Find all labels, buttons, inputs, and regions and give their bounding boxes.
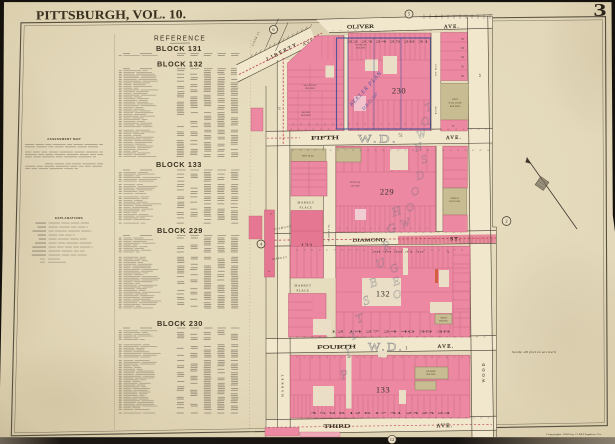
svg-text:19: 19 bbox=[373, 129, 375, 131]
svg-text:15: 15 bbox=[458, 417, 460, 419]
svg-text:42: 42 bbox=[394, 357, 396, 359]
svg-text:98: 98 bbox=[356, 124, 358, 126]
svg-text:13: 13 bbox=[379, 336, 381, 338]
svg-text:62: 62 bbox=[300, 124, 302, 126]
svg-text:10: 10 bbox=[350, 38, 352, 40]
svg-text:22: 22 bbox=[439, 357, 441, 359]
svg-text:86: 86 bbox=[416, 336, 418, 338]
svg-text:64: 64 bbox=[355, 232, 357, 234]
svg-text:40: 40 bbox=[365, 129, 367, 131]
svg-text:48: 48 bbox=[360, 417, 362, 419]
svg-text:11: 11 bbox=[358, 38, 360, 40]
svg-text:33: 33 bbox=[407, 30, 409, 32]
svg-text:64: 64 bbox=[424, 336, 426, 338]
svg-text:95: 95 bbox=[343, 129, 345, 131]
svg-text:35: 35 bbox=[463, 129, 465, 131]
svg-text:BLOCK 133: BLOCK 133 bbox=[156, 162, 202, 169]
svg-text:61: 61 bbox=[409, 357, 411, 359]
svg-text:11: 11 bbox=[488, 417, 490, 419]
svg-text:80: 80 bbox=[420, 150, 422, 152]
svg-text:FIFTH AVE: FIFTH AVE bbox=[350, 181, 361, 184]
svg-text:57: 57 bbox=[409, 336, 411, 338]
svg-text:58: 58 bbox=[435, 417, 437, 419]
svg-text:96: 96 bbox=[395, 129, 397, 131]
svg-text:28: 28 bbox=[431, 357, 433, 359]
svg-text:13: 13 bbox=[469, 357, 471, 359]
svg-text:14: 14 bbox=[385, 232, 387, 234]
svg-text:3: 3 bbox=[594, 0, 607, 20]
svg-text:71: 71 bbox=[371, 336, 373, 338]
svg-text:58: 58 bbox=[311, 357, 313, 359]
svg-text:67: 67 bbox=[315, 150, 317, 152]
svg-text:REFERENCE: REFERENCE bbox=[154, 34, 206, 43]
svg-text:46: 46 bbox=[345, 417, 347, 419]
svg-text:63: 63 bbox=[355, 30, 357, 32]
svg-text:MKT. BLDG: MKT. BLDG bbox=[302, 156, 314, 158]
svg-text:14: 14 bbox=[324, 124, 326, 126]
svg-text:70: 70 bbox=[392, 30, 394, 32]
svg-text:18: 18 bbox=[412, 150, 414, 152]
svg-text:91: 91 bbox=[362, 30, 364, 32]
svg-text:93: 93 bbox=[372, 124, 374, 126]
svg-text:18: 18 bbox=[349, 249, 351, 251]
svg-text:25: 25 bbox=[330, 417, 332, 419]
svg-text:45: 45 bbox=[484, 336, 486, 338]
svg-text:77: 77 bbox=[364, 336, 366, 338]
svg-text:53: 53 bbox=[305, 129, 307, 131]
svg-text:68: 68 bbox=[428, 124, 430, 126]
svg-text:59: 59 bbox=[330, 150, 332, 152]
svg-text:92: 92 bbox=[300, 417, 302, 419]
svg-text:AVE.: AVE. bbox=[436, 423, 453, 429]
svg-text:38: 38 bbox=[442, 150, 444, 152]
svg-text:NATL BANK: NATL BANK bbox=[449, 200, 461, 203]
svg-text:39: 39 bbox=[410, 38, 412, 40]
svg-text:60: 60 bbox=[383, 417, 385, 419]
svg-text:54: 54 bbox=[453, 232, 455, 234]
svg-text:27: 27 bbox=[296, 357, 298, 359]
svg-text:94: 94 bbox=[403, 129, 405, 131]
svg-text:AVE.: AVE. bbox=[437, 344, 454, 350]
svg-text:31: 31 bbox=[354, 228, 356, 230]
svg-text:74: 74 bbox=[322, 150, 324, 152]
svg-text:66: 66 bbox=[316, 124, 318, 126]
svg-text:OLIVER AVE: OLIVER AVE bbox=[355, 44, 367, 47]
svg-text:60: 60 bbox=[446, 357, 448, 359]
svg-text:71: 71 bbox=[377, 30, 379, 32]
svg-text:74: 74 bbox=[415, 30, 417, 32]
svg-text:W.D.: W.D. bbox=[358, 132, 398, 146]
svg-text:42: 42 bbox=[341, 336, 343, 338]
svg-text:28: 28 bbox=[395, 38, 397, 40]
svg-text:FOURTH: FOURTH bbox=[317, 344, 357, 351]
svg-text:12: 12 bbox=[420, 124, 422, 126]
svg-text:52: 52 bbox=[332, 124, 334, 126]
svg-text:84: 84 bbox=[373, 38, 375, 40]
svg-text:29: 29 bbox=[401, 336, 403, 338]
svg-text:BUILDING: BUILDING bbox=[305, 88, 315, 90]
svg-text:230: 230 bbox=[392, 86, 406, 96]
svg-text:43: 43 bbox=[341, 357, 343, 359]
svg-text:28: 28 bbox=[478, 129, 480, 131]
svg-text:47: 47 bbox=[416, 249, 418, 251]
svg-text:28: 28 bbox=[315, 417, 317, 419]
svg-text:59: 59 bbox=[352, 150, 354, 152]
svg-text:ARCADE: ARCADE bbox=[351, 184, 361, 187]
svg-text:21: 21 bbox=[375, 150, 377, 152]
svg-text:84: 84 bbox=[379, 357, 381, 359]
svg-text:30: 30 bbox=[334, 249, 336, 251]
svg-text:14: 14 bbox=[350, 129, 352, 131]
svg-text:18: 18 bbox=[388, 38, 390, 40]
svg-text:29: 29 bbox=[319, 336, 321, 338]
svg-text:40: 40 bbox=[430, 30, 432, 32]
svg-text:57: 57 bbox=[380, 124, 382, 126]
svg-text:COLUMBIA: COLUMBIA bbox=[426, 370, 437, 373]
svg-text:21: 21 bbox=[404, 124, 406, 126]
svg-text:79: 79 bbox=[340, 124, 342, 126]
svg-text:NATL. BANK: NATL. BANK bbox=[449, 101, 462, 104]
svg-text:53: 53 bbox=[470, 129, 472, 131]
svg-text:63: 63 bbox=[386, 357, 388, 359]
svg-text:88: 88 bbox=[308, 124, 310, 126]
svg-text:GERMAN: GERMAN bbox=[450, 197, 459, 200]
svg-text:77: 77 bbox=[422, 30, 424, 32]
svg-text:JOT WAY: JOT WAY bbox=[435, 64, 438, 77]
svg-text:24: 24 bbox=[487, 150, 489, 152]
svg-text:29: 29 bbox=[396, 124, 398, 126]
svg-text:41: 41 bbox=[326, 249, 328, 251]
svg-text:BUILDING: BUILDING bbox=[426, 374, 436, 376]
svg-text:98: 98 bbox=[347, 30, 349, 32]
svg-text:32: 32 bbox=[348, 232, 350, 234]
svg-text:EXPLANATIONS: EXPLANATIONS bbox=[55, 216, 83, 220]
svg-text:47: 47 bbox=[300, 150, 302, 152]
svg-text:53: 53 bbox=[296, 336, 298, 338]
svg-text:64: 64 bbox=[380, 38, 382, 40]
svg-text:89: 89 bbox=[480, 150, 482, 152]
svg-text:83: 83 bbox=[450, 150, 452, 152]
svg-text:44: 44 bbox=[360, 150, 362, 152]
svg-text:81: 81 bbox=[472, 150, 474, 152]
svg-text:25: 25 bbox=[425, 129, 427, 131]
svg-text:97: 97 bbox=[319, 357, 321, 359]
svg-text:BUILDING: BUILDING bbox=[356, 48, 366, 50]
svg-text:ASSESSMENT MAP: ASSESSMENT MAP bbox=[47, 137, 81, 141]
svg-text:ST: ST bbox=[479, 73, 482, 77]
svg-text:WOOD: WOOD bbox=[481, 361, 486, 382]
svg-text:ST: ST bbox=[279, 106, 282, 110]
svg-text:85: 85 bbox=[349, 357, 351, 359]
svg-text:71: 71 bbox=[371, 249, 373, 251]
svg-text:229: 229 bbox=[380, 187, 394, 197]
svg-text:90: 90 bbox=[362, 228, 364, 230]
svg-text:27: 27 bbox=[349, 336, 351, 338]
svg-text:70: 70 bbox=[440, 129, 442, 131]
svg-text:62: 62 bbox=[292, 150, 294, 152]
svg-text:49: 49 bbox=[454, 336, 456, 338]
svg-text:22: 22 bbox=[454, 357, 456, 359]
svg-text:54: 54 bbox=[386, 228, 388, 230]
svg-text:51: 51 bbox=[356, 357, 358, 359]
svg-text:PLACE: PLACE bbox=[299, 206, 312, 210]
svg-text:11: 11 bbox=[445, 232, 447, 234]
svg-text:38: 38 bbox=[398, 417, 400, 419]
svg-text:62: 62 bbox=[364, 249, 366, 251]
svg-text:67: 67 bbox=[308, 417, 310, 419]
svg-text:W.D.: W.D. bbox=[368, 340, 404, 354]
svg-text:33: 33 bbox=[461, 357, 463, 359]
svg-text:FIRST: FIRST bbox=[452, 99, 459, 101]
svg-text:59: 59 bbox=[455, 129, 457, 131]
svg-text:86: 86 bbox=[394, 228, 396, 230]
svg-text:73: 73 bbox=[390, 150, 392, 152]
svg-text:ARROTT: ARROTT bbox=[440, 317, 448, 320]
svg-text:87: 87 bbox=[457, 150, 459, 152]
svg-text:MARKET: MARKET bbox=[294, 284, 311, 288]
svg-text:92: 92 bbox=[304, 336, 306, 338]
svg-text:74: 74 bbox=[473, 417, 475, 419]
svg-text:81: 81 bbox=[433, 129, 435, 131]
svg-text:81: 81 bbox=[448, 129, 450, 131]
svg-text:54: 54 bbox=[370, 228, 372, 230]
svg-text:41: 41 bbox=[371, 357, 373, 359]
svg-text:Scale 40 feet to an inch: Scale 40 feet to an inch bbox=[512, 350, 556, 354]
svg-text:35: 35 bbox=[380, 129, 382, 131]
svg-text:26: 26 bbox=[326, 357, 328, 359]
svg-text:87: 87 bbox=[465, 417, 467, 419]
svg-text:60: 60 bbox=[454, 249, 456, 251]
svg-text:98: 98 bbox=[418, 38, 420, 40]
svg-text:PLACE: PLACE bbox=[296, 289, 309, 293]
svg-text:BUILDING: BUILDING bbox=[439, 320, 448, 322]
svg-text:MAGNET: MAGNET bbox=[302, 111, 311, 114]
svg-text:19: 19 bbox=[418, 129, 420, 131]
svg-text:72: 72 bbox=[460, 232, 462, 234]
svg-text:12: 12 bbox=[388, 124, 390, 126]
svg-text:56: 56 bbox=[307, 150, 309, 152]
svg-text:66: 66 bbox=[356, 249, 358, 251]
svg-text:23: 23 bbox=[418, 228, 420, 230]
svg-text:85: 85 bbox=[438, 232, 440, 234]
svg-text:14: 14 bbox=[424, 249, 426, 251]
svg-text:78: 78 bbox=[485, 129, 487, 131]
svg-text:89: 89 bbox=[405, 417, 407, 419]
svg-text:43: 43 bbox=[401, 249, 403, 251]
svg-text:62: 62 bbox=[423, 232, 425, 234]
svg-text:37: 37 bbox=[386, 336, 388, 338]
svg-text:39: 39 bbox=[403, 38, 405, 40]
svg-text:84: 84 bbox=[439, 336, 441, 338]
svg-text:13: 13 bbox=[334, 357, 336, 359]
svg-text:19: 19 bbox=[323, 417, 325, 419]
svg-text:94: 94 bbox=[408, 232, 410, 234]
svg-text:46: 46 bbox=[386, 249, 388, 251]
svg-text:97: 97 bbox=[378, 232, 380, 234]
svg-text:33: 33 bbox=[338, 228, 340, 230]
svg-text:73: 73 bbox=[348, 124, 350, 126]
svg-text:50: 50 bbox=[465, 150, 467, 152]
svg-text:28: 28 bbox=[311, 336, 313, 338]
svg-text:133: 133 bbox=[376, 385, 390, 395]
svg-text:31: 31 bbox=[446, 249, 448, 251]
svg-text:61: 61 bbox=[313, 129, 315, 131]
svg-text:12: 12 bbox=[390, 437, 395, 442]
svg-text:THIRD: THIRD bbox=[323, 424, 350, 430]
svg-text:AVE.: AVE. bbox=[444, 24, 460, 30]
svg-text:86: 86 bbox=[427, 150, 429, 152]
svg-text:26: 26 bbox=[353, 417, 355, 419]
svg-text:33: 33 bbox=[428, 417, 430, 419]
svg-text:41: 41 bbox=[410, 228, 412, 230]
svg-text:72: 72 bbox=[345, 150, 347, 152]
svg-text:31: 31 bbox=[332, 30, 334, 32]
svg-text:50: 50 bbox=[337, 150, 339, 152]
svg-text:24: 24 bbox=[364, 124, 366, 126]
svg-text:73: 73 bbox=[390, 417, 392, 419]
svg-text:17: 17 bbox=[480, 417, 482, 419]
svg-text:FIFTH: FIFTH bbox=[311, 135, 340, 141]
svg-text:80: 80 bbox=[298, 129, 300, 131]
svg-text:30: 30 bbox=[370, 232, 372, 234]
svg-text:10: 10 bbox=[397, 150, 399, 152]
svg-text:63: 63 bbox=[431, 249, 433, 251]
svg-text:33: 33 bbox=[420, 417, 422, 419]
svg-text:51: 51 bbox=[375, 417, 377, 419]
svg-text:58: 58 bbox=[304, 249, 306, 251]
svg-text:57: 57 bbox=[363, 232, 365, 234]
svg-text:74: 74 bbox=[296, 249, 298, 251]
svg-text:76: 76 bbox=[435, 150, 437, 152]
svg-text:52: 52 bbox=[378, 228, 380, 230]
svg-text:40: 40 bbox=[415, 232, 417, 234]
svg-text:52: 52 bbox=[399, 133, 403, 138]
svg-text:18: 18 bbox=[340, 232, 342, 234]
svg-text:84: 84 bbox=[410, 129, 412, 131]
svg-text:BLOCK 230: BLOCK 230 bbox=[157, 321, 203, 328]
svg-text:94: 94 bbox=[409, 249, 411, 251]
svg-text:BUILDING: BUILDING bbox=[450, 106, 461, 108]
svg-text:18: 18 bbox=[461, 249, 463, 251]
svg-text:22 23 24 25 26 31: 22 23 24 25 26 31 bbox=[347, 41, 432, 44]
svg-text:78: 78 bbox=[469, 336, 471, 338]
svg-text:97: 97 bbox=[401, 357, 403, 359]
svg-text:17: 17 bbox=[379, 249, 381, 251]
svg-text:MARKET: MARKET bbox=[281, 373, 285, 397]
svg-text:41: 41 bbox=[439, 249, 441, 251]
svg-text:30: 30 bbox=[290, 129, 292, 131]
svg-text:95: 95 bbox=[311, 249, 313, 251]
svg-text:93: 93 bbox=[338, 417, 340, 419]
svg-text:15: 15 bbox=[425, 38, 427, 40]
svg-text:78: 78 bbox=[368, 417, 370, 419]
svg-text:31: 31 bbox=[426, 228, 428, 230]
svg-text:MARKET PL.: MARKET PL. bbox=[328, 223, 331, 242]
svg-text:71: 71 bbox=[446, 336, 448, 338]
svg-text:27: 27 bbox=[461, 336, 463, 338]
svg-text:81: 81 bbox=[341, 249, 343, 251]
svg-text:McCLINTOCK: McCLINTOCK bbox=[304, 85, 317, 87]
svg-text:41: 41 bbox=[319, 249, 321, 251]
svg-text:13: 13 bbox=[367, 150, 369, 152]
svg-text:70: 70 bbox=[358, 129, 360, 131]
svg-text:25: 25 bbox=[412, 124, 414, 126]
svg-text:93: 93 bbox=[356, 336, 358, 338]
svg-text:72: 72 bbox=[320, 129, 322, 131]
svg-text:BLOCK 132: BLOCK 132 bbox=[157, 62, 203, 69]
svg-text:65: 65 bbox=[292, 124, 294, 126]
svg-text:33: 33 bbox=[335, 129, 337, 131]
svg-text:BLOCK 229: BLOCK 229 bbox=[157, 228, 203, 235]
svg-text:16: 16 bbox=[334, 336, 336, 338]
svg-text:56: 56 bbox=[394, 336, 396, 338]
svg-text:30: 30 bbox=[382, 150, 384, 152]
svg-text:76: 76 bbox=[400, 232, 402, 234]
svg-text:PITTSBURGH, VOL. 10.: PITTSBURGH, VOL. 10. bbox=[36, 7, 186, 22]
svg-text:71: 71 bbox=[326, 336, 328, 338]
svg-text:57: 57 bbox=[365, 38, 367, 40]
svg-text:35: 35 bbox=[443, 417, 445, 419]
svg-text:3 5 9 6 12 6 17 31 23 2: 3 5 9 6 12 6 17 31 23 23 24 bbox=[310, 412, 453, 415]
svg-text:27: 27 bbox=[424, 357, 426, 359]
svg-text:29: 29 bbox=[328, 129, 330, 131]
svg-text:16: 16 bbox=[394, 249, 396, 251]
svg-text:36: 36 bbox=[388, 129, 390, 131]
svg-text:27: 27 bbox=[416, 357, 418, 359]
svg-text:ST.: ST. bbox=[450, 236, 461, 241]
svg-text:96: 96 bbox=[393, 232, 395, 234]
svg-text:11: 11 bbox=[304, 357, 306, 359]
svg-text:BOOK: BOOK bbox=[435, 106, 438, 114]
svg-text:31: 31 bbox=[413, 417, 415, 419]
svg-text:85: 85 bbox=[476, 336, 478, 338]
svg-text:AVE.: AVE. bbox=[446, 135, 462, 141]
svg-text:72: 72 bbox=[405, 150, 407, 152]
svg-text:80: 80 bbox=[450, 417, 452, 419]
svg-text:95: 95 bbox=[346, 228, 348, 230]
svg-text:92: 92 bbox=[364, 357, 366, 359]
svg-text:37: 37 bbox=[385, 30, 387, 32]
svg-text:46: 46 bbox=[370, 30, 372, 32]
svg-text:BUILDING: BUILDING bbox=[301, 115, 311, 117]
svg-text:72: 72 bbox=[431, 336, 433, 338]
svg-text:75: 75 bbox=[400, 30, 402, 32]
svg-text:30: 30 bbox=[430, 232, 432, 234]
svg-text:MARKET: MARKET bbox=[297, 201, 314, 205]
svg-text:BLOCK 131: BLOCK 131 bbox=[156, 46, 202, 53]
svg-text:Copyright 1909 by G.M.Hopkins: Copyright 1909 by G.M.Hopkins Co. bbox=[546, 433, 603, 436]
svg-text:132: 132 bbox=[376, 289, 390, 299]
svg-text:63: 63 bbox=[340, 30, 342, 32]
svg-text:49: 49 bbox=[402, 228, 404, 230]
